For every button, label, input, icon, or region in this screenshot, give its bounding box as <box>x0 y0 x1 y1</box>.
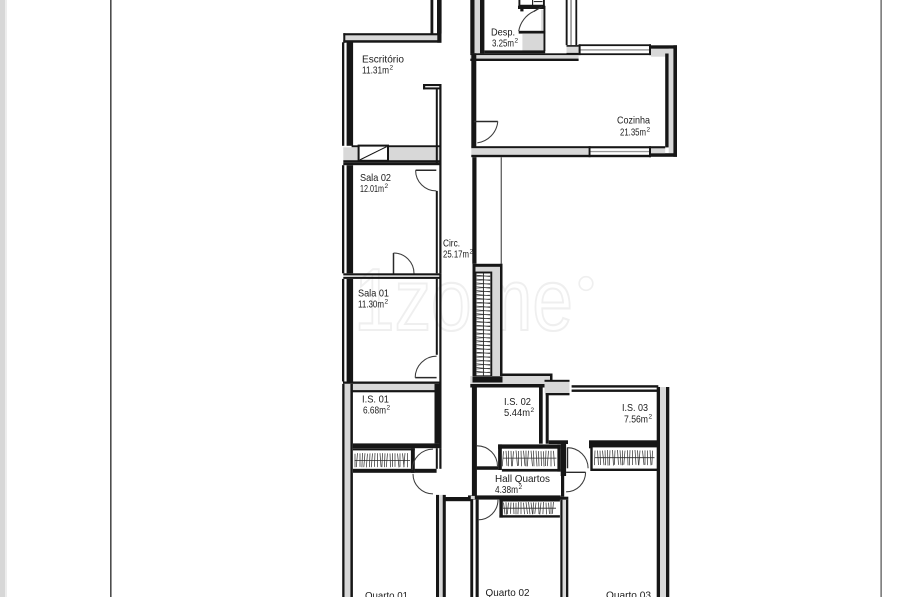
svg-text:2: 2 <box>385 299 389 306</box>
svg-text:Desp.: Desp. <box>491 28 515 39</box>
svg-text:I.S. 01: I.S. 01 <box>362 395 389 406</box>
svg-text:21.35m: 21.35m <box>620 128 646 139</box>
svg-text:2: 2 <box>515 38 519 45</box>
svg-text:Quarto 01: Quarto 01 <box>365 591 408 597</box>
svg-text:11.30m: 11.30m <box>358 300 384 311</box>
svg-text:2: 2 <box>470 249 474 256</box>
svg-text:Quarto 02: Quarto 02 <box>486 588 530 597</box>
svg-text:7.56m: 7.56m <box>624 415 648 426</box>
svg-text:I.S. 03: I.S. 03 <box>622 403 648 414</box>
svg-text:Cozinha: Cozinha <box>617 116 650 127</box>
svg-text:Escritório: Escritório <box>362 55 404 66</box>
svg-text:12.01m: 12.01m <box>360 184 384 195</box>
svg-text:Circ.: Circ. <box>443 239 460 250</box>
svg-text:2: 2 <box>649 414 653 421</box>
svg-text:2: 2 <box>387 405 391 412</box>
svg-text:2: 2 <box>531 407 535 414</box>
svg-text:Quarto 03: Quarto 03 <box>606 591 651 597</box>
svg-text:Hall Quartos: Hall Quartos <box>495 474 550 485</box>
svg-text:11.31m: 11.31m <box>362 66 389 77</box>
svg-text:I.S. 02: I.S. 02 <box>504 397 531 408</box>
svg-text:2: 2 <box>519 484 523 491</box>
svg-text:5.44m: 5.44m <box>504 408 530 419</box>
svg-text:4.38m: 4.38m <box>495 485 518 496</box>
svg-text:2: 2 <box>385 183 389 190</box>
svg-text:2: 2 <box>647 127 651 134</box>
svg-text:3.25m: 3.25m <box>492 39 514 50</box>
svg-text:2: 2 <box>390 65 394 72</box>
svg-text:6.68m: 6.68m <box>363 406 386 417</box>
svg-text:25.17m: 25.17m <box>443 250 469 261</box>
